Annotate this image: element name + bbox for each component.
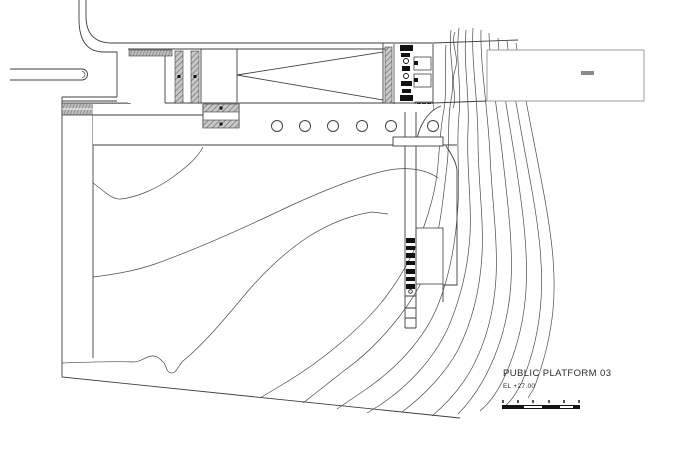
scale-segment xyxy=(524,406,542,408)
scale-tick xyxy=(548,400,550,403)
median-island xyxy=(10,69,88,80)
scale-tick xyxy=(502,400,504,403)
bridge-structure xyxy=(487,50,644,101)
elevation-label: EL +27.00 xyxy=(503,383,663,390)
scale-tick xyxy=(578,400,580,403)
scale-tick xyxy=(532,400,534,403)
curb-inner xyxy=(86,0,128,43)
pier-side-box xyxy=(416,228,443,284)
scale-bar xyxy=(502,398,580,412)
scale-segment xyxy=(573,406,579,408)
scale-segment xyxy=(503,406,524,408)
curb-outer xyxy=(79,0,117,97)
platform-right-edge xyxy=(443,146,457,302)
title-block: PUBLIC PLATFORM 03 EL +27.00 xyxy=(503,368,663,390)
drawing-title: PUBLIC PLATFORM 03 xyxy=(503,368,663,379)
pier-walkway xyxy=(393,112,443,328)
curb-horizontals xyxy=(62,97,117,101)
scale-strip xyxy=(502,405,580,409)
bridge-micro-label xyxy=(581,71,594,75)
scale-segment xyxy=(560,406,574,408)
scale-tick xyxy=(563,400,565,403)
pier-crossbar xyxy=(393,137,443,146)
scale-tick xyxy=(517,400,519,403)
structure-top-edge xyxy=(128,40,518,43)
scale-ticks xyxy=(502,398,580,404)
road-curbs xyxy=(62,0,128,101)
scale-segment xyxy=(542,406,560,408)
pier-stair-treads xyxy=(406,238,415,289)
band-hatch-strip xyxy=(129,50,172,56)
